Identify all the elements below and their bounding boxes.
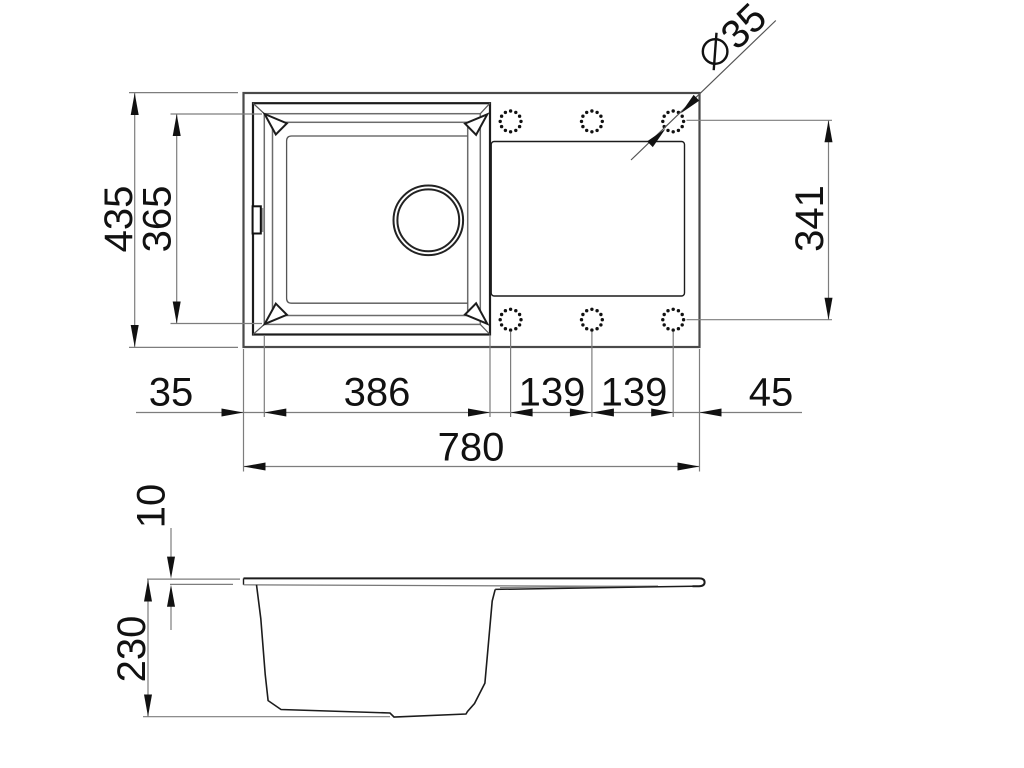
svg-text:139: 139 [519,371,586,415]
svg-text:35: 35 [713,0,776,58]
svg-text:341: 341 [788,185,832,252]
svg-text:386: 386 [344,371,411,415]
svg-text:139: 139 [601,371,668,415]
svg-text:10: 10 [130,484,174,529]
svg-text:230: 230 [110,616,154,683]
svg-text:35: 35 [149,371,194,415]
svg-text:365: 365 [136,186,180,253]
svg-text:45: 45 [749,371,794,415]
svg-text:435: 435 [97,186,141,253]
svg-text:780: 780 [438,426,505,470]
